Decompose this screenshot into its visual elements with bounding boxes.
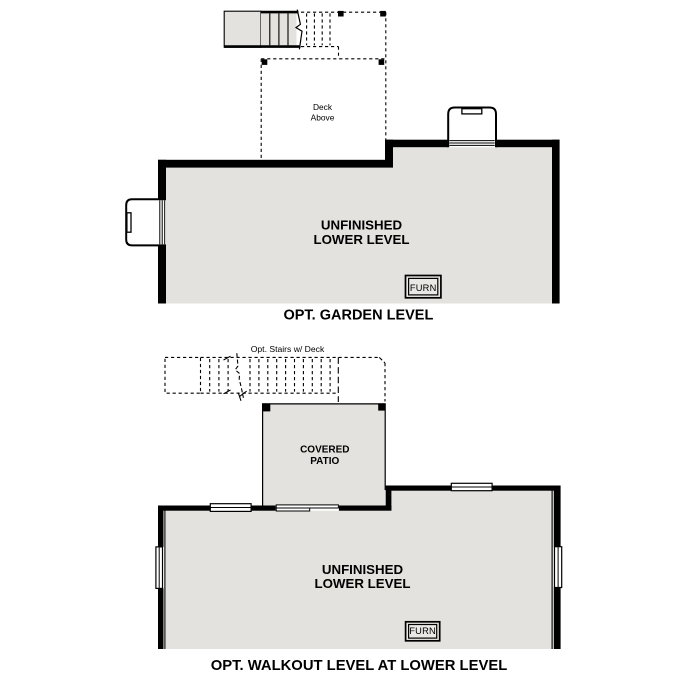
- svg-text:UNFINISHED: UNFINISHED: [322, 562, 404, 577]
- svg-text:OPT. WALKOUT LEVEL AT LOWER LE: OPT. WALKOUT LEVEL AT LOWER LEVEL: [211, 658, 508, 674]
- svg-text:Deck: Deck: [313, 102, 333, 112]
- svg-text:OPT. GARDEN LEVEL: OPT. GARDEN LEVEL: [283, 308, 433, 324]
- svg-text:FURN: FURN: [410, 283, 437, 293]
- svg-text:Opt. Stairs w/ Deck: Opt. Stairs w/ Deck: [251, 344, 325, 354]
- svg-text:Above: Above: [311, 113, 335, 123]
- svg-text:LOWER LEVEL: LOWER LEVEL: [313, 232, 409, 247]
- svg-text:FURN: FURN: [409, 626, 436, 636]
- svg-text:LOWER LEVEL: LOWER LEVEL: [314, 576, 410, 591]
- svg-text:COVERED: COVERED: [300, 444, 349, 455]
- svg-text:UNFINISHED: UNFINISHED: [321, 217, 403, 232]
- svg-text:PATIO: PATIO: [310, 456, 339, 467]
